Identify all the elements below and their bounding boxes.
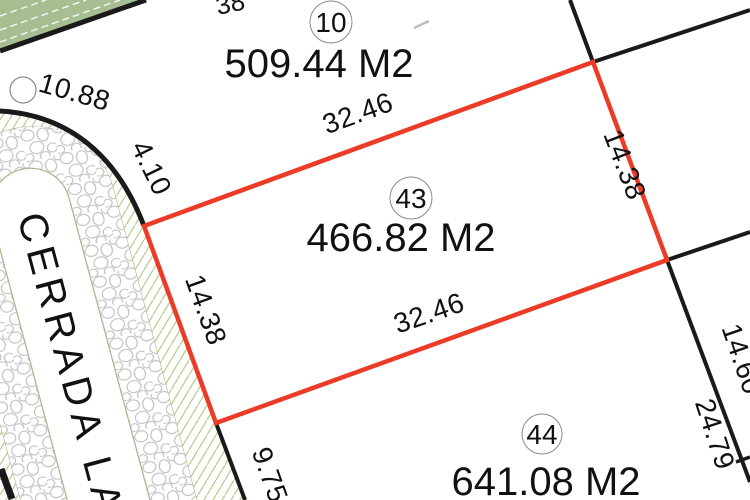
lot-area-44: 641.08 M2 bbox=[451, 460, 640, 500]
map-canvas: CERRADA LA 10 509.44 M2 43 bbox=[0, 0, 750, 500]
lot-44-label-group[interactable]: 44 641.08 M2 bbox=[451, 414, 640, 500]
lot-number-44: 44 bbox=[526, 419, 557, 450]
dim-east-upper: 14.60 bbox=[716, 320, 750, 399]
survey-circle bbox=[10, 77, 36, 103]
dim-lot43-top: 32.46 bbox=[318, 86, 397, 140]
dim-curve-top: 10.88 bbox=[35, 67, 113, 117]
faint-tick bbox=[414, 21, 429, 28]
lot-10-label-group[interactable]: 10 509.44 M2 bbox=[224, 1, 413, 86]
lot-number-10: 10 bbox=[315, 7, 346, 38]
lot-number-43: 43 bbox=[395, 183, 426, 214]
plat-map-svg: CERRADA LA 10 509.44 M2 43 bbox=[0, 0, 750, 500]
green-area bbox=[0, 0, 146, 51]
lot-area-10: 509.44 M2 bbox=[224, 42, 413, 86]
dim-top-partial: 38 bbox=[213, 0, 248, 21]
lot-area-43: 466.82 M2 bbox=[306, 216, 495, 260]
dim-curve-corner: 4.10 bbox=[125, 136, 178, 200]
dim-street-lower: 9.75 bbox=[246, 443, 294, 500]
